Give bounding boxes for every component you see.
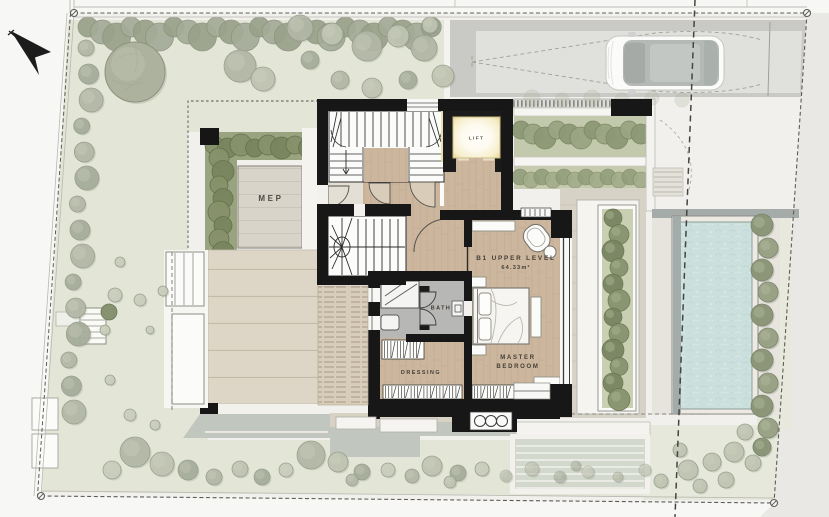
svg-text:LIFT: LIFT [469, 136, 485, 142]
svg-text:BATH: BATH [431, 306, 452, 312]
svg-text:BEDROOM: BEDROOM [496, 364, 539, 370]
svg-text:MEP: MEP [258, 194, 283, 203]
svg-text:B1 UPPER LEVEL: B1 UPPER LEVEL [476, 255, 556, 262]
svg-text:DRESSING: DRESSING [401, 370, 441, 376]
svg-text:MASTER: MASTER [500, 355, 536, 361]
svg-text:64.33m²: 64.33m² [501, 264, 530, 271]
